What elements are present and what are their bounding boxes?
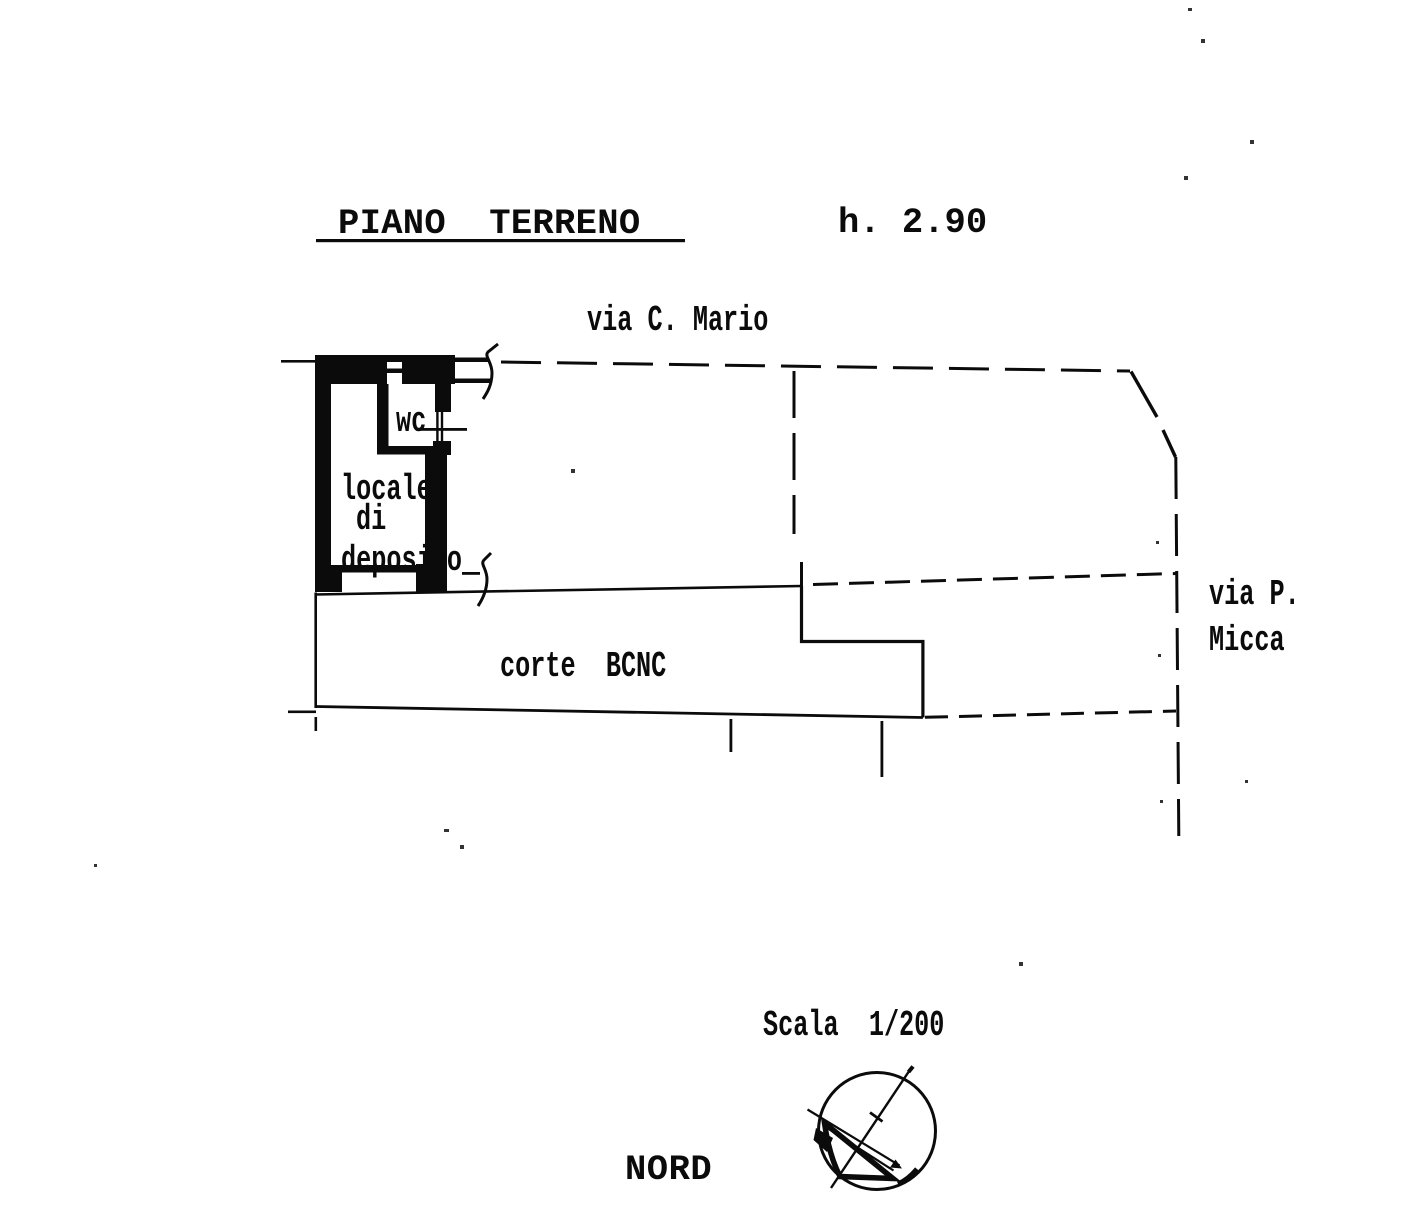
svg-text:Scala 1/200: Scala 1/200 (763, 1006, 944, 1047)
svg-text:h. 2.90: h. 2.90 (838, 202, 987, 243)
svg-text:locale: locale (341, 470, 432, 511)
svg-text:PIANO TERRENO: PIANO TERRENO (338, 203, 640, 244)
svg-text:via C. Mario: via C. Mario (587, 301, 768, 342)
svg-text:wc: wc (396, 402, 426, 443)
svg-text:corte BCNC: corte BCNC (500, 647, 666, 688)
svg-text:Micca: Micca (1209, 621, 1285, 662)
svg-text:NORD: NORD (625, 1149, 712, 1190)
svg-text:deposito: deposito (341, 541, 462, 582)
svg-text:via P.: via P. (1209, 575, 1300, 616)
svg-text:di: di (356, 500, 386, 541)
